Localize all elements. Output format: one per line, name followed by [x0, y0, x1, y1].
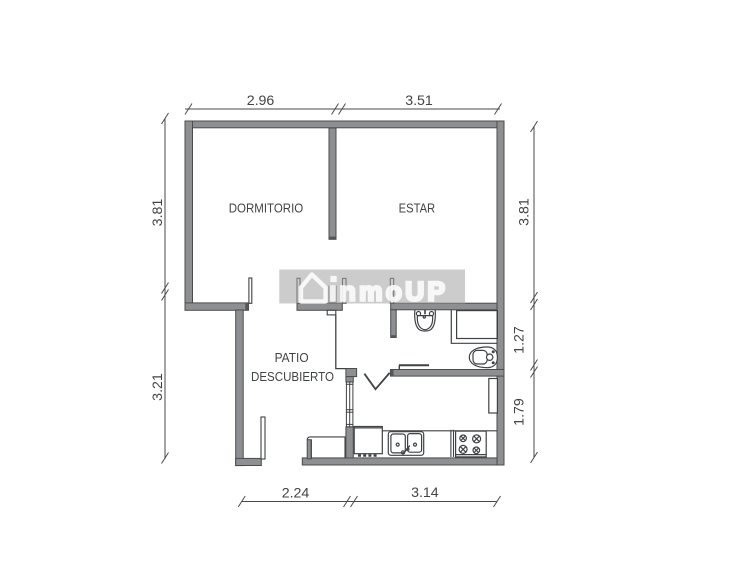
svg-text:2.96: 2.96 [247, 93, 275, 109]
svg-text:1.27: 1.27 [512, 326, 528, 354]
svg-text:DESCUBIERTO: DESCUBIERTO [251, 369, 334, 384]
svg-text:3.51: 3.51 [405, 93, 433, 109]
svg-text:ESTAR: ESTAR [399, 201, 436, 216]
svg-text:PATIO: PATIO [275, 350, 309, 365]
svg-text:2.24: 2.24 [282, 486, 310, 502]
svg-text:3.81: 3.81 [517, 198, 533, 226]
svg-text:1.79: 1.79 [512, 398, 528, 426]
svg-text:3.21: 3.21 [150, 373, 166, 401]
svg-text:ınmoUP: ınmoUP [329, 277, 448, 307]
svg-text:DORMITORIO: DORMITORIO [229, 201, 304, 216]
svg-text:3.14: 3.14 [411, 485, 439, 501]
svg-text:3.81: 3.81 [150, 199, 166, 227]
